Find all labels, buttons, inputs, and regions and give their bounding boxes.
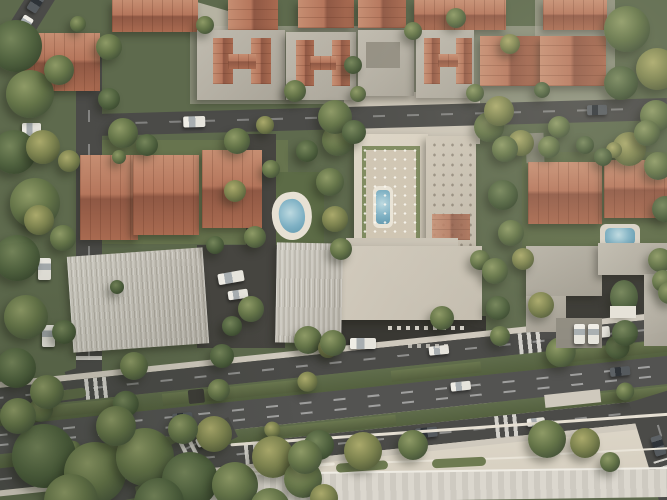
layer-atmosphere — [0, 0, 667, 500]
aerial-site-plan-render — [0, 0, 667, 500]
sunlight-haze — [260, 0, 667, 340]
shade-haze — [0, 240, 340, 500]
